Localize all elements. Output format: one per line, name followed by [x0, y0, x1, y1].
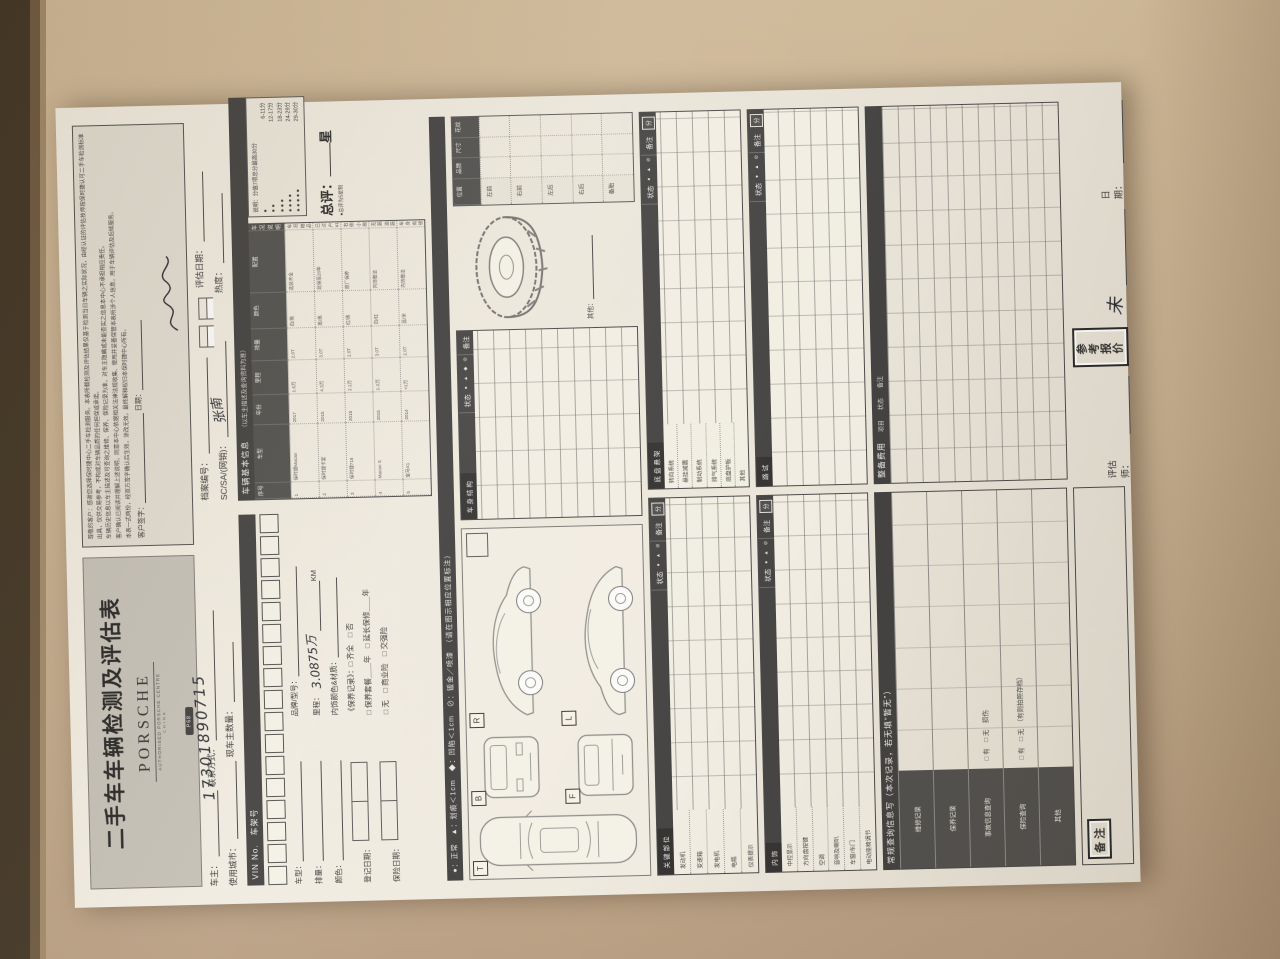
road-test-section: 路试 状态● ▲ ⊘ 备注 分	[747, 107, 868, 488]
query-info-table: 维修记录 保养记录 事故信息查询□ 有 □ 无 损伤 保险查询□ 有 □ 无 （…	[891, 488, 1076, 870]
reference-price-box: 参考报价	[1072, 327, 1129, 367]
basic-info-column: 车辆基本信息（以车主描述及查询资料为准） 序号车型 年份里程 排量颜色 配置车况…	[228, 94, 432, 501]
form-header: 二手车车辆检测及评估表 PORSCHE AUTHORISED PORSCHE C…	[72, 123, 203, 890]
mileage-field: 里程： 3.0875万 KM	[301, 513, 323, 716]
rating-scale-box: 说明：分值7项总分最高30分 ●6-11分 ● ●12-17分 ● ● ●18-…	[245, 97, 307, 218]
chassis-section: 底盘悬架 状态● ▲ ⊘ 备注 分 转向系统悬挂减震 制动系统排气系统 底盘护板…	[639, 109, 750, 489]
warranty-field: □ 保养套餐＿＿年 □ 延长保修＿＿年	[358, 512, 374, 715]
rear-view-label: F	[565, 789, 580, 804]
interior-color-field: 内饰颜色&材质：	[324, 512, 340, 715]
paint-code-box	[466, 533, 489, 558]
vehicle-info-column: VIN No. 车架号 车型： 排量： 颜色：	[238, 510, 441, 886]
form-page: 二手车车辆检测及评估表 PORSCHE AUTHORISED PORSCHE C…	[55, 82, 1140, 908]
customer-signature-scribble	[156, 254, 186, 335]
car-front-view: B	[472, 730, 550, 804]
road-test-grid	[764, 108, 867, 486]
color-field: 颜色：	[329, 715, 344, 883]
car-right-side-view: R	[467, 532, 550, 726]
photo-scene: 二手车车辆检测及评估表 PORSCHE AUTHORISED PORSCHE C…	[0, 0, 1280, 959]
footer-line: 评估师： 参考报价 未 日期：	[1067, 100, 1133, 479]
tire-other-line: 其他：	[582, 209, 595, 319]
recondition-grid	[882, 102, 1068, 484]
reg-date-field: 登记日期：	[349, 715, 373, 883]
tire-illustration: 其他：	[453, 208, 638, 322]
brand-model-field: 品牌/型号：	[284, 513, 300, 716]
interior-section: 内饰 状态● ▲ ⊘ 备注 分 中控显示方向盘按键 空调音响及喇叭 车窗/车门电…	[756, 492, 877, 873]
vehicle-fields: 车型： 排量： 颜色： 登记日期： 保险日期： 品牌/型号： 里程： 3.087…	[284, 511, 402, 885]
handwritten-mileage: 3.0875万	[302, 635, 325, 691]
basic-info-table: 序号车型 年份里程 排量颜色 配置车况说明 1保时捷Macan20171.6万2…	[248, 220, 432, 501]
remark-box-label: 备注	[1087, 819, 1112, 860]
title-block: 二手车车辆检测及评估表 PORSCHE AUTHORISED PORSCHE C…	[82, 555, 202, 890]
query-info-column: 常规查询信息写（本次记录，若无填“暂无”） 维修记录 保养记录 事故信息查询□ …	[874, 486, 1142, 870]
header-boxes	[198, 298, 207, 348]
front-view-label: B	[471, 791, 486, 806]
overall-rating: 总评：星	[314, 96, 336, 216]
tire-table: 位置品牌 尺寸花纹 左前 右前 左后 右后 备胎	[451, 112, 635, 206]
tire-section: 其他： 位置品牌 尺寸花纹 左前 右前 左后 右后 备胎	[451, 112, 638, 322]
displacement-field: 排量：	[309, 716, 324, 884]
car-rear-view: F	[566, 728, 644, 802]
interior-grid	[773, 493, 875, 807]
disclaimer-block: 尊敬的客户：感谢您选择保时捷中心二手车检测服务。本表所载检测及评估结果仅基于检测…	[72, 123, 194, 548]
recondition-column: 整备费用 项目 状态 备注 评估师： 参考报价 未 日期：	[865, 100, 1133, 484]
desk-shadow	[1140, 0, 1280, 959]
model-field: 车型：	[289, 716, 304, 884]
car-top-view: T	[474, 806, 646, 874]
right-side-label: R	[469, 713, 484, 728]
insurance-date-field: 保险日期：	[378, 714, 402, 882]
insurance-opts-field: □ 无 □ 商业险 □ 交强险	[375, 511, 391, 714]
key-parts-section: 关键部位 状态● ▲ ⊘ 备注 分 发动机变速箱 发电机电瓶 仪表提示	[648, 495, 759, 875]
maintenance-field: 《保养记录》：□ 齐全 □ 否	[341, 512, 357, 715]
body-structure-section: 车身结构 状态 ● ▲ ◆ ⊘ 备注	[456, 326, 643, 520]
chassis-grid	[656, 110, 748, 424]
city-line: 使用城市： 现车主数量：	[218, 514, 239, 886]
top-view-label: T	[473, 861, 488, 876]
remark-area: 备注	[1073, 486, 1134, 865]
car-diagrams: T B	[461, 524, 652, 880]
page-title: 二手车车辆检测及评估表	[93, 558, 131, 889]
handwritten-wei: 未	[1102, 297, 1128, 316]
table-edge-shadow	[0, 0, 46, 959]
car-left-side-view: L	[559, 530, 642, 724]
vin-boxes	[259, 514, 287, 885]
owner-line: 车主： 联系方式： 17301890715	[199, 514, 220, 886]
inspection-form-paper: 二手车车辆检测及评估表 PORSCHE AUTHORISED PORSCHE C…	[55, 82, 1140, 908]
key-parts-grid	[665, 496, 757, 810]
left-side-label: L	[561, 711, 576, 726]
file-no-line: 档案编号： 评估日期：	[190, 123, 211, 501]
overall-rating-note: ●总评为5星制	[335, 96, 345, 216]
rating-panel: 说明：分值7项总分最高30分 ●6-11分 ● ●12-17分 ● ● ●18-…	[245, 94, 425, 218]
sc-line: SC/SA/(网销)： 张南 热度：	[209, 122, 230, 500]
body-structure-grid	[473, 327, 642, 519]
